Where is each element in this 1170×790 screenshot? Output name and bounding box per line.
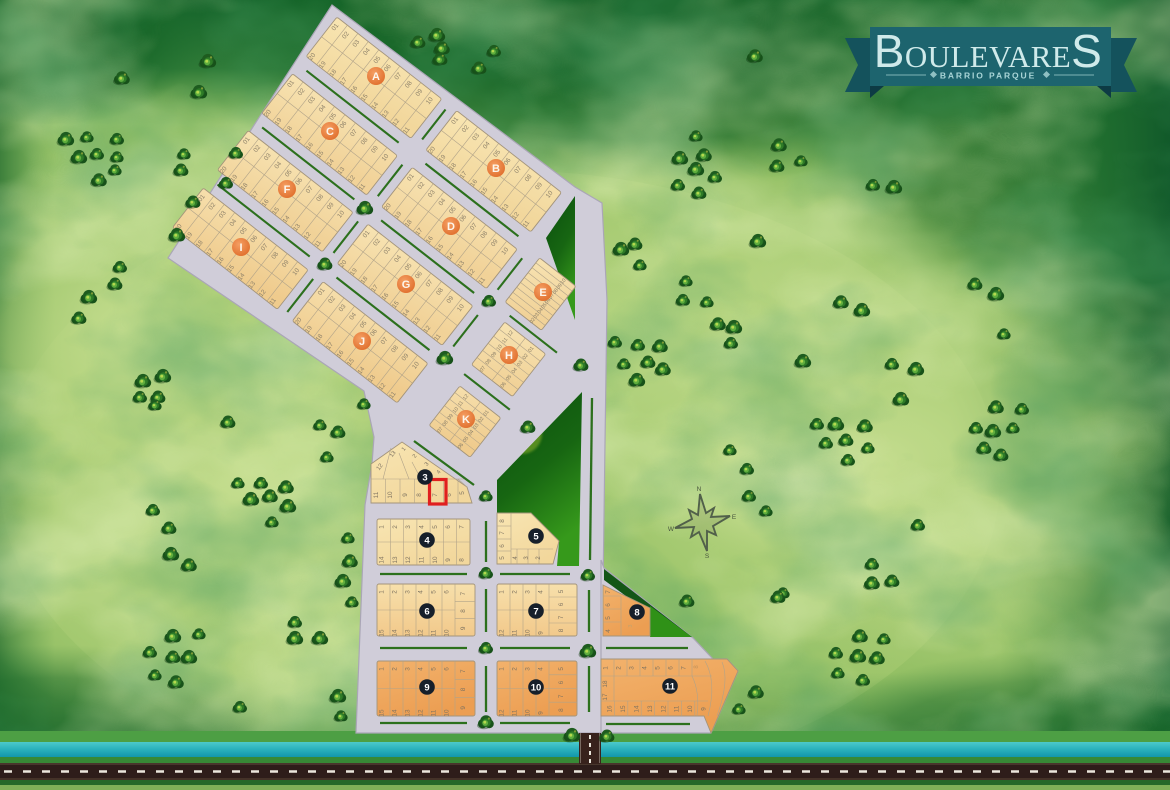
svg-text:13: 13 [405,629,412,637]
svg-text:E: E [539,287,546,299]
svg-text:6: 6 [445,525,452,529]
svg-text:B: B [492,163,500,175]
svg-text:13: 13 [405,709,412,717]
svg-text:5: 5 [431,590,438,594]
svg-text:8: 8 [558,708,565,712]
svg-text:I: I [239,242,242,254]
svg-text:12: 12 [418,709,425,717]
svg-text:1: 1 [379,590,386,594]
svg-text:1: 1 [379,525,386,529]
svg-text:1: 1 [499,590,506,594]
svg-text:11: 11 [431,629,438,636]
svg-text:2: 2 [392,525,399,529]
svg-text:4: 4 [642,666,649,670]
svg-text:3: 3 [628,624,634,627]
svg-text:10: 10 [444,709,451,717]
svg-text:7: 7 [558,615,565,619]
svg-text:D: D [447,221,455,233]
svg-text:8: 8 [499,519,506,523]
svg-text:5: 5 [533,531,539,542]
svg-text:5: 5 [558,589,565,593]
svg-text:4: 4 [424,535,430,546]
svg-text:6: 6 [424,606,429,617]
svg-text:5: 5 [655,666,662,670]
svg-text:3: 3 [405,525,412,529]
svg-text:3: 3 [525,667,532,671]
svg-text:12: 12 [499,629,506,637]
svg-text:6: 6 [668,666,675,670]
svg-text:15: 15 [620,705,627,713]
svg-text:10: 10 [525,629,532,637]
svg-text:5: 5 [431,667,438,671]
svg-text:11: 11 [674,705,681,712]
svg-text:11: 11 [512,629,519,636]
svg-text:13: 13 [647,705,654,713]
svg-text:18: 18 [602,680,609,688]
svg-text:10: 10 [444,629,451,637]
svg-text:12: 12 [405,556,412,564]
svg-text:BARRIO PARQUE: BARRIO PARQUE [940,71,1036,81]
svg-text:16: 16 [607,705,614,713]
svg-text:E: E [732,514,737,521]
svg-text:6: 6 [444,590,451,594]
svg-text:9: 9 [424,682,429,693]
svg-text:W: W [668,526,675,533]
svg-text:15: 15 [379,629,386,637]
svg-text:3: 3 [422,472,427,483]
svg-text:H: H [505,350,513,362]
svg-text:17: 17 [602,693,609,701]
svg-text:14: 14 [392,629,399,637]
svg-text:12: 12 [418,629,425,637]
svg-text:7: 7 [460,591,467,595]
svg-text:3: 3 [629,666,636,670]
svg-text:5: 5 [605,616,612,620]
svg-text:2: 2 [616,666,623,670]
svg-text:9: 9 [460,626,467,630]
svg-text:7: 7 [499,531,506,535]
svg-text:15: 15 [379,709,386,717]
svg-text:9: 9 [701,707,708,711]
svg-text:8: 8 [558,628,565,632]
svg-text:N: N [697,486,702,493]
svg-text:7: 7 [460,669,467,673]
svg-text:10: 10 [525,709,532,717]
svg-text:7: 7 [605,590,612,594]
svg-text:11: 11 [419,556,426,563]
svg-text:8: 8 [416,493,423,497]
svg-text:A: A [372,71,380,83]
svg-text:12: 12 [660,705,667,713]
svg-text:5: 5 [432,525,439,529]
svg-text:5: 5 [558,667,565,671]
svg-text:11: 11 [373,491,380,498]
svg-text:F: F [284,184,291,196]
svg-text:7: 7 [533,606,538,617]
svg-text:1: 1 [499,667,506,671]
svg-text:8: 8 [460,687,467,691]
svg-text:4: 4 [419,525,426,529]
svg-text:4: 4 [538,590,545,594]
svg-text:C: C [326,126,334,138]
svg-text:7: 7 [558,694,565,698]
svg-text:9: 9 [538,711,545,715]
svg-text:10: 10 [687,705,694,713]
svg-text:10: 10 [432,556,439,564]
svg-text:6: 6 [444,667,451,671]
svg-text:13: 13 [392,556,399,564]
svg-text:3: 3 [405,590,412,594]
svg-text:10: 10 [387,491,394,499]
svg-text:8: 8 [634,607,639,618]
svg-text:3: 3 [525,590,532,594]
svg-text:11: 11 [431,709,438,716]
svg-text:11: 11 [512,709,519,716]
svg-text:9: 9 [445,558,452,562]
svg-text:4: 4 [418,667,425,671]
svg-text:1: 1 [379,667,386,671]
svg-text:5: 5 [459,491,466,495]
svg-text:7: 7 [681,666,688,670]
svg-text:10: 10 [531,682,542,693]
svg-text:8: 8 [458,558,465,562]
svg-text:5: 5 [499,556,506,560]
svg-text:2: 2 [512,590,519,594]
svg-text:J: J [359,336,365,348]
svg-text:11: 11 [665,681,676,692]
svg-text:2: 2 [392,667,399,671]
svg-text:14: 14 [379,556,386,564]
svg-text:14: 14 [392,709,399,717]
svg-text:G: G [402,279,411,291]
svg-text:6: 6 [558,680,565,684]
svg-text:9: 9 [460,706,467,710]
svg-text:9: 9 [402,493,409,497]
svg-text:6: 6 [605,603,612,607]
svg-text:8: 8 [460,609,467,613]
svg-text:6: 6 [499,544,506,548]
svg-text:2: 2 [392,590,399,594]
svg-text:7: 7 [432,493,439,497]
svg-text:3: 3 [405,667,412,671]
svg-text:2: 2 [512,667,519,671]
svg-text:7: 7 [458,525,465,529]
svg-text:4: 4 [605,629,612,633]
svg-text:4: 4 [538,667,545,671]
svg-text:6: 6 [558,602,565,606]
svg-text:K: K [462,414,470,426]
svg-text:9: 9 [538,631,545,635]
svg-text:4: 4 [418,590,425,594]
svg-text:14: 14 [634,705,641,713]
svg-text:S: S [705,553,710,560]
svg-text:12: 12 [499,709,506,717]
svg-text:1: 1 [603,666,610,670]
